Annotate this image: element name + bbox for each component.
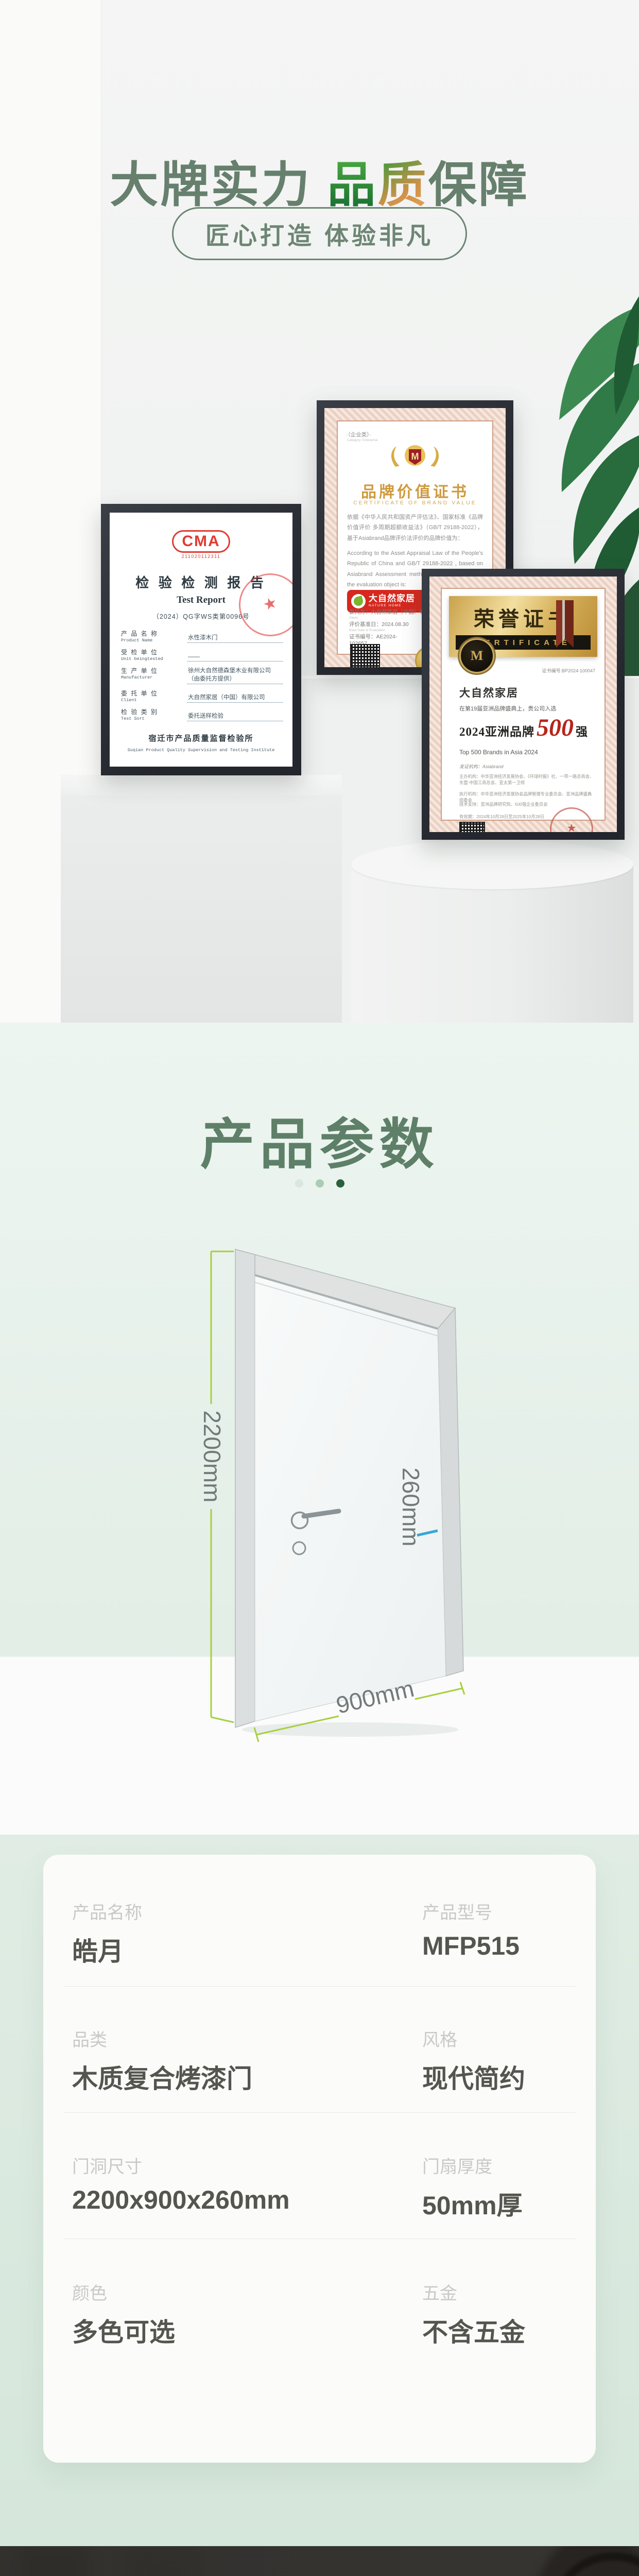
spec-value: 多色可选: [72, 2312, 175, 2349]
hero-section: ·（企业类）· Category: Enterprise M 品牌价值证书 CE…: [0, 0, 639, 1023]
podium-left-cube-front: [61, 795, 342, 1023]
product-detail-page: ·（企业类）· Category: Enterprise M 品牌价值证书 CE…: [0, 0, 639, 2576]
spec-label: 产品名称: [72, 1899, 142, 1924]
honor-cert-number: 证书编号:BP2024-100047: [542, 667, 595, 674]
gold-medal-icon: M: [338, 443, 492, 472]
issuer-line: 发证机构：Asiabrand: [459, 763, 504, 770]
honor-title: 荣誉证书: [449, 596, 597, 632]
red-seal-icon: [550, 807, 593, 832]
dark-overlay: [0, 2546, 639, 2576]
service-section: 金保姆服务 全国1000+实体门店支持 咨询下单 上: [0, 2546, 639, 2576]
report-form: 产 品 名 称Product Name 水性漆木门 受 检 单 位Unit be…: [121, 629, 283, 721]
cma-logo: CMA 211020112311: [171, 530, 232, 559]
cert-date-row: 评价基准日：2024.08.30 Base Date of Evaluation: [349, 620, 409, 632]
divider: [64, 1986, 575, 1987]
spec-value: 2200x900x260mm: [72, 2185, 290, 2215]
door-left-stile: [235, 1249, 255, 1727]
spec-label: 产品型号: [422, 1899, 492, 1924]
hero-subtitle-capsule: 匠心打造 体验非凡: [0, 207, 639, 260]
honor-medal-icon: M: [459, 638, 494, 673]
cert-paragraph-cn: 依据《中华人民共和国资产评估法》、国家标准《品牌价值评价 多周期超额收益法》（G…: [347, 512, 483, 544]
support-line: 技术支持：亚洲品牌研究院、500强企业委员会: [459, 801, 594, 807]
form-row: 委 托 单 位Client 大自然家居（中国）有限公司: [121, 689, 283, 703]
cert-category-en: Category: Enterprise: [347, 438, 378, 442]
hero-title: 大牌实力 品质保障: [0, 146, 639, 216]
organizer-line: 主办机构：中华亚洲经济发展协会、《环球时报》社、一带一路总商会、东盟·中国工商总…: [459, 773, 594, 786]
spec-label: 风格: [422, 2026, 457, 2051]
spec-value: 皓月: [72, 1931, 124, 1968]
spec-label: 门扇厚度: [422, 2153, 492, 2178]
award-line: 2024亚洲品牌 500 强: [459, 717, 588, 739]
door-dimension-diagram: 2200mm 260mm 900mm: [129, 1234, 520, 1752]
testing-institute-cn: 宿迁市产品质量监督检验所: [110, 733, 292, 743]
form-row: 受 检 单 位Unit beingtested ——: [121, 648, 283, 662]
cert-subtitle: CERTIFICATE OF BRAND VALUE: [338, 500, 492, 506]
spec-card: 产品名称 皓月 产品型号 MFP515 品类 木质复合烤漆门 风格 现代简约 门…: [43, 1855, 596, 2463]
spec-value: 木质复合烤漆门: [72, 2058, 252, 2095]
podium-left-cube-top: [61, 775, 342, 795]
award-line-en: Top 500 Brands in Asia 2024: [459, 749, 538, 756]
form-row: 检 验 类 别Test Sort 委托送样检验: [121, 707, 283, 721]
testing-institute-en: Suqian Product Quality Supervision and T…: [110, 748, 292, 753]
cert-title: 品牌价值证书: [338, 479, 492, 502]
spec-label: 五金: [422, 2279, 457, 2304]
honor-intro-line: 在第19届亚洲品牌盛典上，贵公司入选: [459, 704, 556, 713]
qr-code: [459, 822, 485, 832]
spec-value: MFP515: [422, 1931, 520, 1961]
door-depth-label: 260mm: [398, 1467, 424, 1546]
test-report-certificate: CMA 211020112311 检 验 检 测 报 告 Test Report…: [101, 504, 301, 775]
spec-label: 颜色: [72, 2279, 107, 2304]
leaf-icon: [351, 594, 366, 608]
validity-line: 有效期：2024年10月28日至2025年10月28日: [459, 814, 544, 820]
svg-text:M: M: [411, 451, 419, 462]
spec-label: 门洞尺寸: [72, 2153, 142, 2178]
spec-value: 50mm厚: [422, 2185, 523, 2222]
divider: [64, 2112, 575, 2113]
qr-code: [350, 644, 380, 667]
door-height-label: 2200mm: [199, 1411, 226, 1503]
parameters-title: 产品参数: [0, 1100, 639, 1179]
spec-label: 品类: [72, 2026, 107, 2051]
honor-brand-name: 大自然家居: [459, 685, 519, 700]
spec-value: 不含五金: [422, 2312, 525, 2349]
form-row: 生 产 单 位Manufacturer 徐州大自然德森堡木业有限公司（由委托方提…: [121, 666, 283, 684]
title-dots-decoration: [0, 1179, 639, 1188]
spec-value: 现代简约: [422, 2058, 525, 2095]
honor-certificate: 荣誉证书 CERTIFICATE M 证书编号:BP2024-100047 大自…: [422, 569, 625, 840]
podium-cylinder-top: [351, 840, 633, 889]
cert-category: ·（企业类）·: [346, 431, 371, 438]
parameters-section: 产品参数: [0, 1023, 639, 2546]
divider: [64, 2239, 575, 2239]
